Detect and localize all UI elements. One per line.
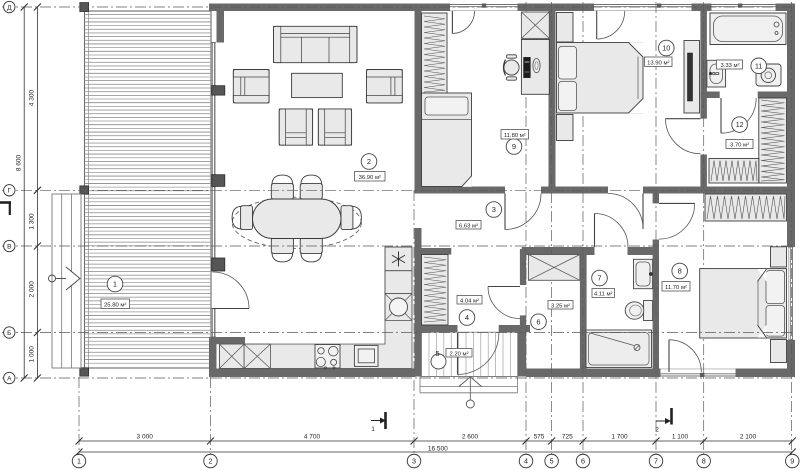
svg-text:8 600: 8 600 (16, 154, 23, 171)
svg-text:2: 2 (655, 427, 659, 434)
svg-text:8: 8 (678, 267, 682, 276)
svg-text:1 300: 1 300 (29, 213, 36, 230)
svg-text:1: 1 (77, 456, 81, 465)
svg-text:25.80 м²: 25.80 м² (104, 302, 126, 308)
svg-text:4.04 м²: 4.04 м² (460, 298, 479, 304)
svg-text:9: 9 (512, 142, 516, 151)
svg-text:Г: Г (8, 188, 12, 195)
svg-text:4: 4 (524, 456, 528, 465)
svg-text:6: 6 (536, 317, 540, 326)
svg-text:13.90 м²: 13.90 м² (647, 60, 669, 66)
svg-text:4 700: 4 700 (304, 433, 321, 440)
svg-text:В: В (7, 243, 11, 250)
svg-text:1 700: 1 700 (611, 433, 628, 440)
svg-text:16 500: 16 500 (428, 445, 448, 452)
svg-text:1 100: 1 100 (672, 433, 689, 440)
svg-text:Д: Д (7, 4, 12, 11)
svg-text:11.70 м²: 11.70 м² (665, 285, 687, 291)
svg-text:3: 3 (492, 205, 496, 214)
svg-text:2 100: 2 100 (740, 433, 757, 440)
svg-text:7: 7 (654, 456, 658, 465)
svg-text:12: 12 (736, 122, 744, 129)
svg-text:4: 4 (465, 313, 469, 322)
svg-text:6: 6 (581, 456, 585, 465)
svg-text:А: А (7, 375, 12, 382)
svg-text:3: 3 (412, 456, 416, 465)
svg-text:11: 11 (755, 63, 762, 70)
svg-text:10: 10 (662, 46, 670, 53)
svg-text:11.80 м²: 11.80 м² (504, 133, 526, 139)
svg-text:3.33 м²: 3.33 м² (720, 63, 739, 69)
svg-text:575: 575 (534, 433, 545, 440)
svg-text:Б: Б (7, 330, 11, 337)
svg-text:1: 1 (371, 426, 375, 433)
svg-text:3 000: 3 000 (137, 433, 154, 440)
svg-text:6.63 м²: 6.63 м² (459, 223, 478, 229)
svg-text:3.70 м²: 3.70 м² (730, 143, 749, 149)
svg-text:8: 8 (702, 456, 706, 465)
svg-text:2.20 м²: 2.20 м² (449, 351, 468, 357)
svg-text:2: 2 (367, 157, 371, 166)
svg-text:1 000: 1 000 (29, 346, 36, 363)
svg-text:5: 5 (435, 349, 439, 358)
svg-text:2 000: 2 000 (29, 281, 36, 298)
svg-text:9: 9 (790, 456, 794, 465)
svg-text:4 300: 4 300 (29, 89, 36, 106)
svg-text:36.90 м²: 36.90 м² (359, 175, 381, 181)
svg-text:5: 5 (550, 456, 554, 465)
svg-text:1: 1 (113, 280, 117, 289)
svg-text:725: 725 (562, 433, 573, 440)
svg-text:4.11 м²: 4.11 м² (594, 292, 613, 298)
svg-text:2: 2 (209, 456, 213, 465)
svg-text:3.25 м²: 3.25 м² (551, 303, 570, 309)
svg-text:7: 7 (597, 274, 601, 283)
svg-text:2 600: 2 600 (462, 433, 479, 440)
